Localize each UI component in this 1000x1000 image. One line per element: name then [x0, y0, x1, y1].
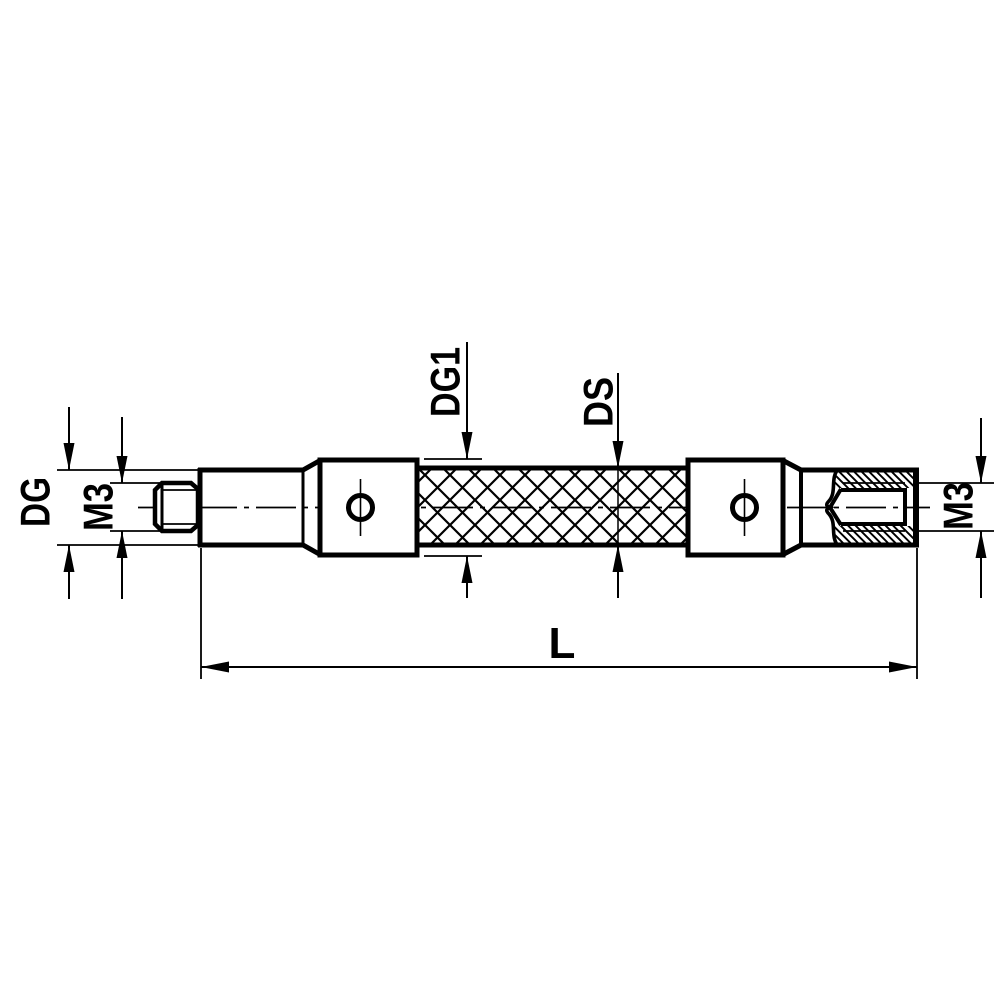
label-l: L — [549, 619, 576, 668]
label-dg: DG — [12, 477, 59, 527]
left-collar — [320, 460, 417, 555]
label-m3-right: M3 — [935, 482, 982, 530]
label-dg1: DG1 — [422, 347, 469, 417]
shaft-crosshatch-fill — [417, 471, 688, 544]
stylus-extension-drawing: DG M3 DG1 DS M3 L — [0, 0, 1000, 1000]
carbon-shaft — [417, 468, 688, 545]
right-collar — [688, 460, 783, 555]
section-hatch-top — [833, 473, 913, 489]
section-hatch-bottom — [833, 526, 913, 543]
label-m3-left: M3 — [75, 483, 122, 531]
left-thread-stud — [155, 483, 198, 531]
technical-drawing-page: DG M3 DG1 DS M3 L — [0, 0, 1000, 1000]
label-ds: DS — [575, 377, 622, 427]
